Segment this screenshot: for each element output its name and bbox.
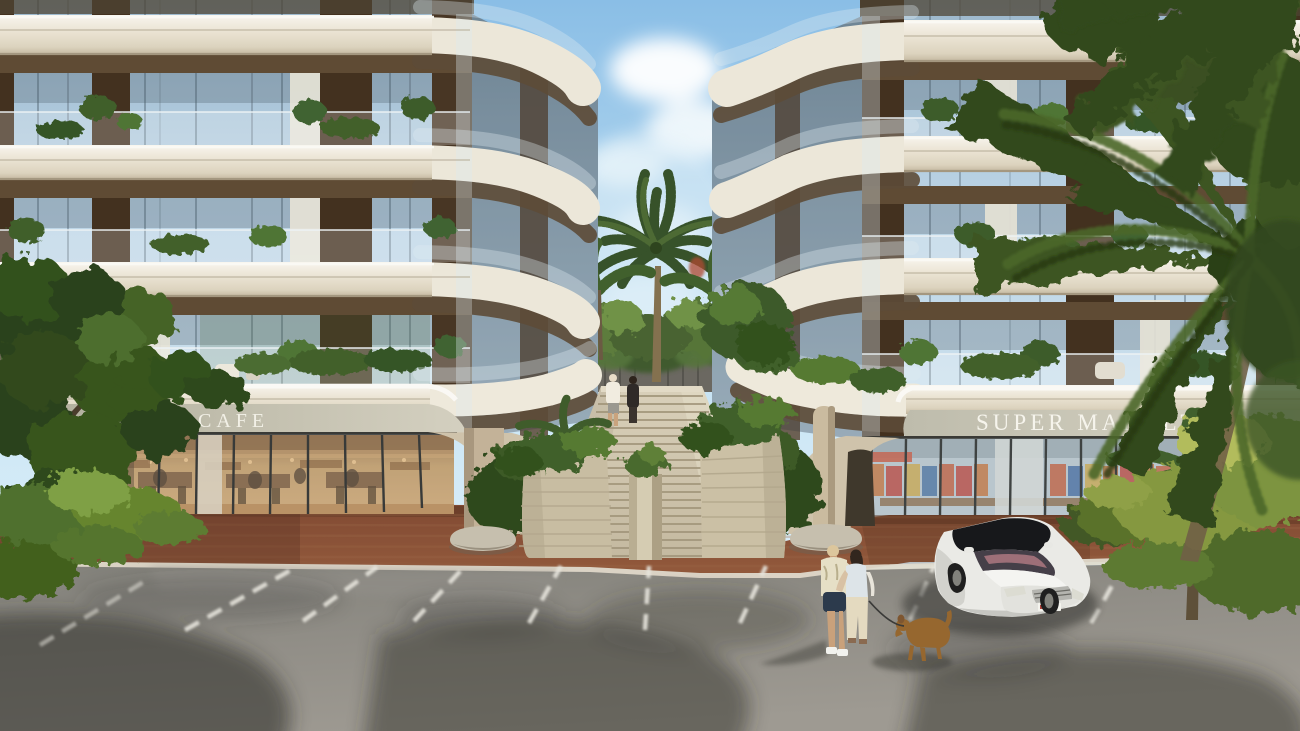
svg-text:CAFE: CAFE [198, 410, 269, 432]
